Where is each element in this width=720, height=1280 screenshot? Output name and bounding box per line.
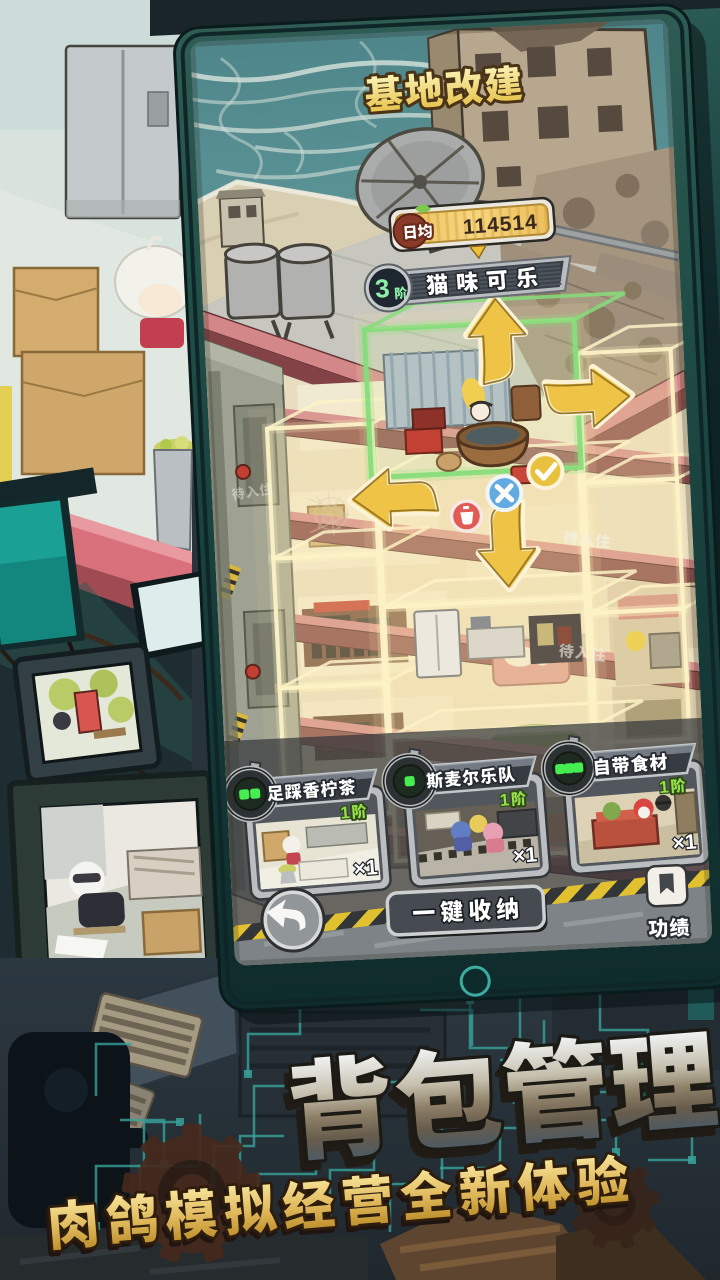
svg-text:1: 1 (499, 790, 510, 810)
svg-text:×1: ×1 (353, 856, 379, 881)
svg-text:1: 1 (340, 803, 351, 823)
svg-text:3: 3 (374, 273, 391, 304)
svg-text:×1: ×1 (672, 830, 698, 855)
svg-text:1: 1 (659, 777, 670, 797)
svg-text:×1: ×1 (512, 843, 538, 868)
